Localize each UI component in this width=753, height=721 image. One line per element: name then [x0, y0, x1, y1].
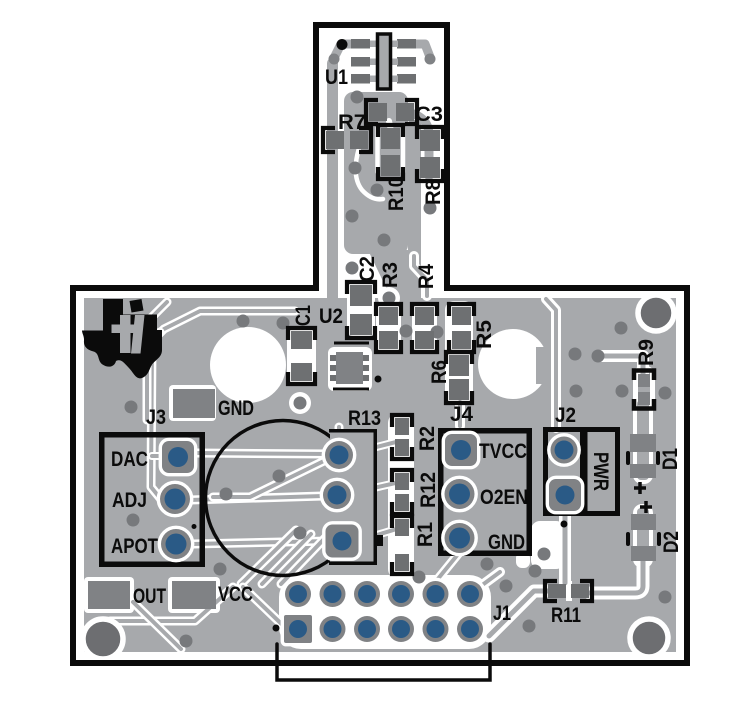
svg-text:ADJ: ADJ — [112, 489, 147, 512]
svg-text:R7: R7 — [338, 111, 366, 134]
svg-text:R12: R12 — [417, 472, 440, 508]
svg-text:J3: J3 — [146, 406, 166, 429]
svg-text:APOT: APOT — [111, 535, 158, 558]
svg-text:R11: R11 — [551, 604, 581, 627]
svg-text:C3: C3 — [415, 103, 443, 126]
svg-text:R2: R2 — [416, 426, 439, 451]
svg-text:R5: R5 — [473, 320, 496, 349]
svg-text:R6: R6 — [428, 360, 451, 384]
svg-text:DAC: DAC — [111, 448, 148, 471]
svg-text:VCC: VCC — [218, 583, 253, 606]
svg-text:C2: C2 — [356, 256, 379, 282]
svg-text:J2: J2 — [555, 404, 576, 427]
svg-text:PWR: PWR — [589, 452, 612, 491]
svg-text:R1: R1 — [414, 522, 437, 547]
svg-text:R9: R9 — [635, 339, 658, 366]
svg-text:TVCC: TVCC — [479, 440, 527, 463]
svg-text:D1: D1 — [659, 448, 682, 470]
svg-text:GND: GND — [488, 531, 525, 554]
svg-text:GND: GND — [218, 397, 254, 420]
svg-text:R13: R13 — [348, 407, 381, 430]
svg-text:J4: J4 — [450, 403, 473, 426]
svg-text:U2: U2 — [319, 305, 343, 328]
svg-text:R3: R3 — [379, 262, 402, 288]
svg-text:O2EN: O2EN — [480, 486, 528, 509]
svg-text:R8: R8 — [422, 179, 445, 205]
svg-text:OUT: OUT — [133, 585, 166, 608]
svg-text:J1: J1 — [493, 602, 511, 625]
svg-text:D2: D2 — [660, 531, 683, 553]
svg-text:R4: R4 — [415, 264, 438, 289]
svg-text:R10: R10 — [385, 177, 408, 211]
svg-text:U1: U1 — [325, 66, 348, 89]
svg-text:C1: C1 — [292, 305, 315, 326]
